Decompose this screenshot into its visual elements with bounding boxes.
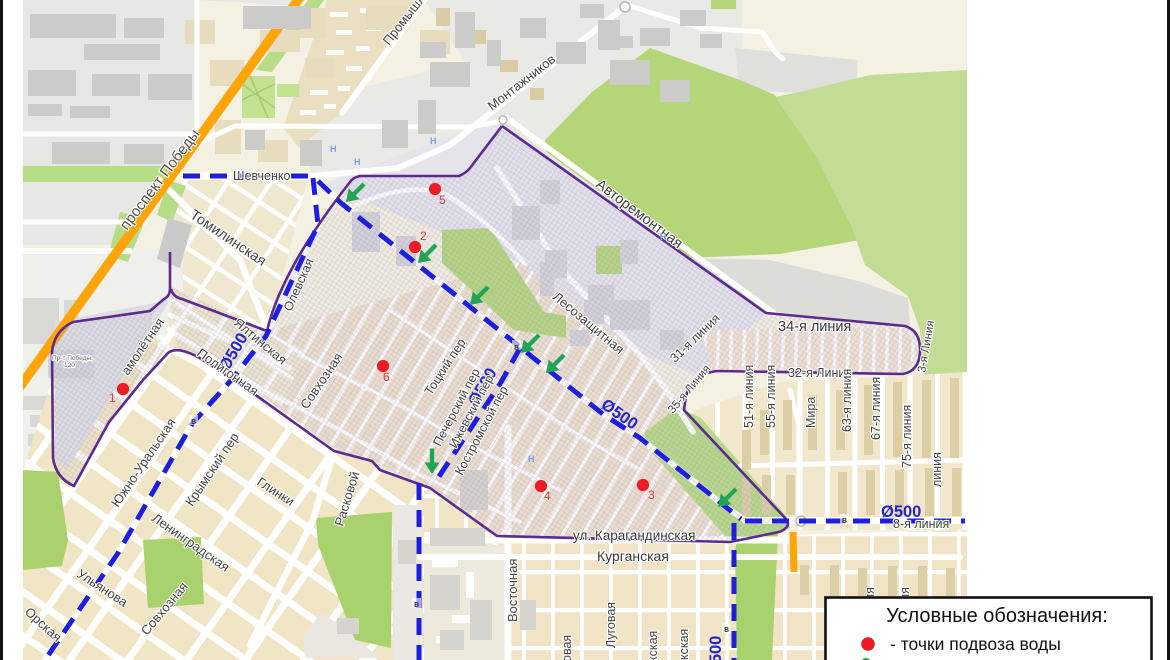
svg-text:67-я линия: 67-я линия <box>869 377 883 440</box>
svg-text:в: в <box>514 342 519 353</box>
svg-text:4: 4 <box>544 489 551 503</box>
svg-text:8-я линия: 8-я линия <box>893 517 949 531</box>
svg-text:Восточная: Восточная <box>505 559 520 622</box>
svg-text:Н: Н <box>528 454 535 464</box>
svg-text:ул. Карагандинская: ул. Карагандинская <box>573 528 695 543</box>
svg-text:120: 120 <box>64 362 75 369</box>
svg-text:Пр-т Победы,: Пр-т Победы, <box>52 354 93 362</box>
svg-text:63-я линия: 63-я линия <box>840 369 854 432</box>
svg-text:- точки подвоза воды: - точки подвоза воды <box>890 634 1061 654</box>
svg-text:Н: Н <box>354 157 361 167</box>
svg-text:34-я линия: 34-я линия <box>778 319 851 335</box>
svg-text:в: в <box>842 515 847 526</box>
svg-text:Ø500: Ø500 <box>707 636 725 660</box>
svg-text:овая: овая <box>560 635 574 660</box>
svg-text:75-я линия: 75-я линия <box>900 405 914 468</box>
svg-text:1: 1 <box>109 391 116 405</box>
svg-text:Условные обозначения:: Условные обозначения: <box>886 605 1108 627</box>
svg-text:Н: Н <box>430 136 437 146</box>
svg-text:5: 5 <box>439 193 446 207</box>
svg-text:линия: линия <box>930 452 944 487</box>
svg-text:3: 3 <box>648 488 655 502</box>
svg-text:51-я линия: 51-я линия <box>742 365 756 428</box>
svg-text:Мира: Мира <box>804 397 818 428</box>
svg-text:2: 2 <box>420 229 427 243</box>
svg-text:кская: кская <box>677 629 691 660</box>
svg-text:Н: Н <box>330 144 337 154</box>
svg-text:55-я линия: 55-я линия <box>764 365 778 428</box>
svg-text:6: 6 <box>383 370 390 384</box>
svg-text:Шевченко: Шевченко <box>233 169 290 183</box>
svg-text:в: в <box>414 599 419 610</box>
svg-text:в: в <box>724 624 729 635</box>
svg-text:Луговая: Луговая <box>604 602 618 648</box>
svg-text:Н: Н <box>660 232 667 242</box>
svg-text:в: в <box>191 416 196 427</box>
svg-text:Курганская: Курганская <box>597 548 669 564</box>
svg-text:кская: кская <box>646 631 660 660</box>
